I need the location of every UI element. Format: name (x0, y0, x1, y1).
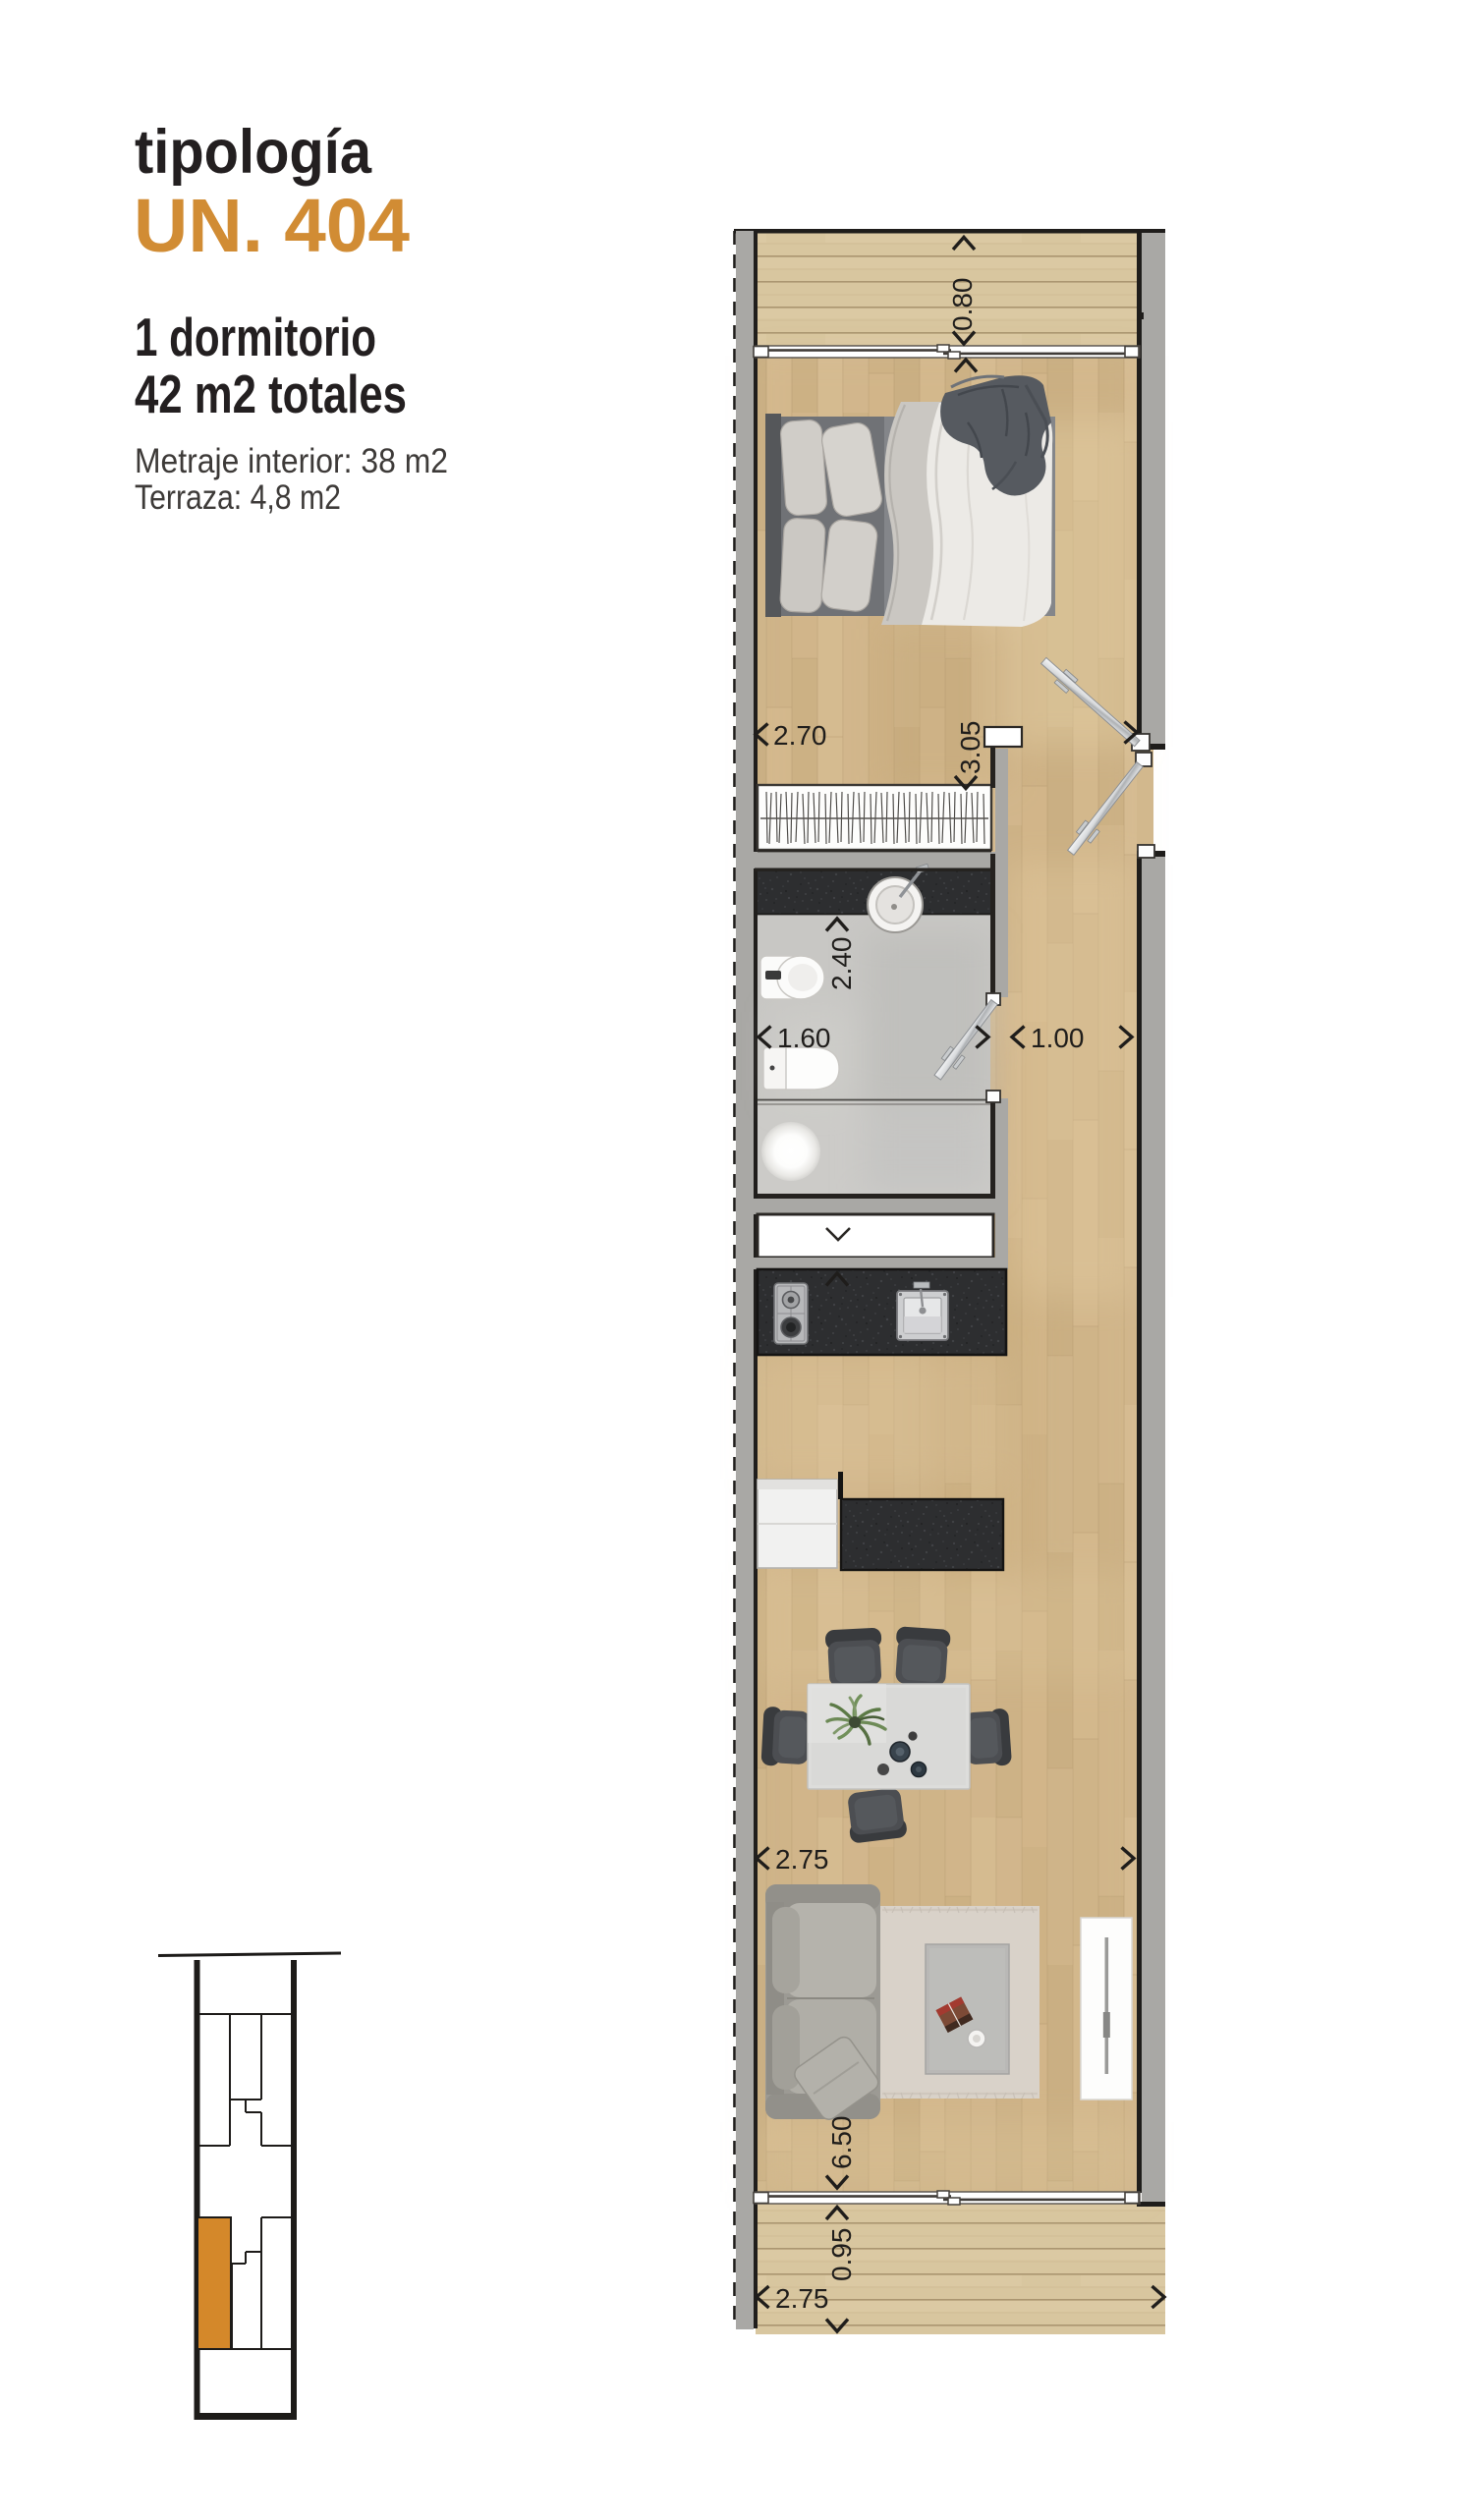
svg-text:Terraza: 4,8 m2: Terraza: 4,8 m2 (135, 478, 341, 517)
svg-text:2.75: 2.75 (775, 1844, 829, 1875)
svg-text:42 m2 totales: 42 m2 totales (135, 364, 407, 424)
svg-text:3.05: 3.05 (955, 721, 985, 775)
svg-text:0.95: 0.95 (826, 2228, 857, 2282)
svg-text:UN. 404: UN. 404 (134, 184, 410, 268)
svg-text:0.80: 0.80 (947, 278, 978, 332)
svg-text:1.60: 1.60 (777, 1023, 831, 1053)
svg-text:1.00: 1.00 (1031, 1023, 1085, 1053)
svg-text:2.75: 2.75 (775, 2283, 829, 2314)
svg-text:2.70: 2.70 (773, 720, 827, 751)
svg-text:tipología: tipología (135, 118, 372, 187)
svg-text:Metraje interior: 38 m2: Metraje interior: 38 m2 (135, 442, 448, 480)
svg-text:2.40: 2.40 (826, 937, 857, 991)
svg-text:6.50: 6.50 (826, 2116, 857, 2170)
svg-text:1 dormitorio: 1 dormitorio (135, 307, 376, 367)
